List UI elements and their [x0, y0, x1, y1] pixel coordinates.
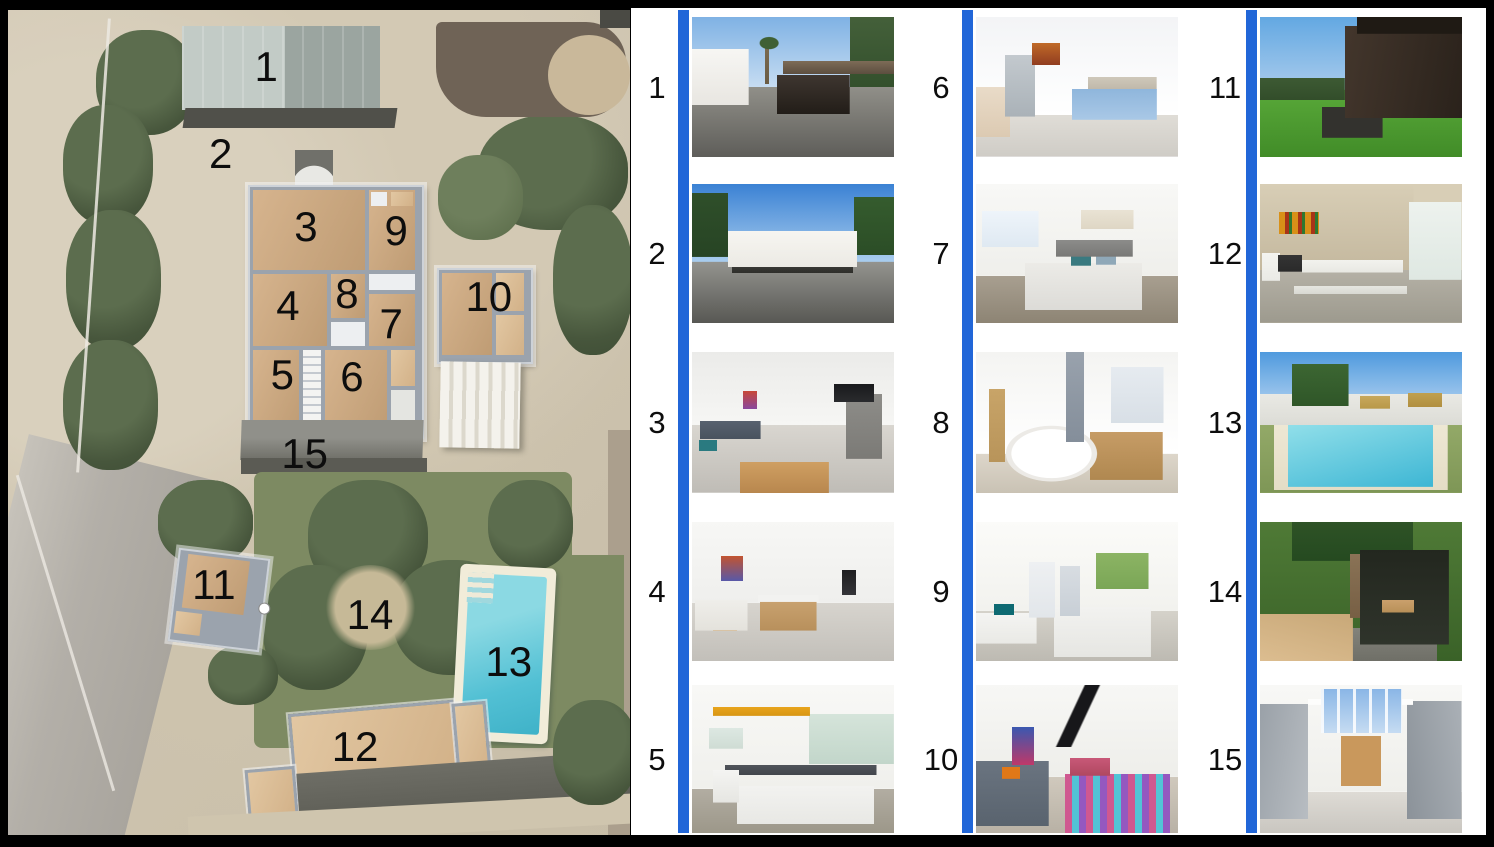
gallery-row: 3: [634, 352, 896, 493]
photo-number-8: 8: [918, 352, 964, 493]
photo-8: [976, 352, 1178, 493]
tree-canopy: [438, 155, 523, 240]
photo-2: [692, 184, 894, 323]
photo-9: [976, 522, 1178, 661]
gallery-column-3: 1112131415: [1202, 8, 1464, 835]
gallery-row: 11: [1202, 17, 1464, 157]
plan-label-1: 1: [254, 46, 277, 88]
photo-number-14: 14: [1202, 522, 1248, 661]
garden-shrub: [488, 480, 573, 570]
pool-steps: [467, 572, 495, 603]
photo-1: [692, 17, 894, 157]
photo-number-10: 10: [918, 685, 964, 833]
tree-canopy: [553, 205, 630, 355]
photo-5: [692, 685, 894, 833]
plan-label-12: 12: [332, 727, 379, 769]
warehouse-roof-area-1: [182, 26, 380, 110]
gallery-row: 12: [1202, 184, 1464, 323]
gallery-column-2: 678910: [918, 8, 1180, 835]
plan-closet: [371, 192, 387, 206]
photo-6: [976, 17, 1178, 157]
photo-number-4: 4: [634, 522, 680, 661]
gallery-row: 15: [1202, 685, 1464, 833]
roof-shadow: [183, 108, 398, 128]
photo-number-7: 7: [918, 184, 964, 323]
photo-gallery: 123456789101112131415: [631, 8, 1486, 835]
photo-11: [1260, 17, 1462, 157]
photo-number-11: 11: [1202, 17, 1248, 157]
plan-label-7: 7: [379, 303, 402, 345]
gallery-row: 13: [1202, 352, 1464, 493]
photo-number-5: 5: [634, 685, 680, 833]
gallery-row: 9: [918, 522, 1180, 661]
plan-label-11: 11: [192, 564, 236, 606]
plan-label-14: 14: [347, 595, 394, 637]
gallery-row: 8: [918, 352, 1180, 493]
porch-arch: [295, 150, 333, 188]
plan-label-9: 9: [384, 210, 407, 252]
plan-label-4: 4: [276, 285, 299, 327]
photo-14: [1260, 522, 1462, 661]
gallery-row: 14: [1202, 522, 1464, 661]
plan-label-6: 6: [340, 356, 363, 398]
plan-label-2: 2: [209, 133, 232, 175]
tree-canopy: [553, 700, 630, 805]
gallery-row: 4: [634, 522, 896, 661]
plan-hall: [331, 322, 365, 346]
photo-3: [692, 352, 894, 493]
tree-canopy: [63, 105, 153, 225]
photo-number-12: 12: [1202, 184, 1248, 323]
gallery-row: 2: [634, 184, 896, 323]
gallery-row: 5: [634, 685, 896, 833]
awning: [439, 361, 520, 448]
photo-number-6: 6: [918, 17, 964, 157]
house-roof-15: [240, 420, 423, 460]
photo-13: [1260, 352, 1462, 493]
photo-7: [976, 184, 1178, 323]
photo-4: [692, 522, 894, 661]
gallery-row: 7: [918, 184, 1180, 323]
photo-number-15: 15: [1202, 685, 1248, 833]
plan-label-8: 8: [335, 273, 358, 315]
garden-shrub: [208, 645, 278, 705]
tree-canopy: [66, 210, 161, 350]
plan-corridor: [369, 274, 415, 290]
plan-label-15: 15: [281, 433, 328, 475]
plan-label-13: 13: [485, 642, 532, 684]
plan-label-3: 3: [294, 206, 317, 248]
photo-number-3: 3: [634, 352, 680, 493]
gallery-row: 1: [634, 17, 896, 157]
plan-room-11b: [174, 611, 202, 636]
gallery-row: 6: [918, 17, 1180, 157]
plan-closet: [391, 192, 413, 206]
neighbour-roof: [600, 10, 630, 28]
photo-10: [976, 685, 1178, 833]
photo-12: [1260, 184, 1462, 323]
page-frame: 123456789101112131415 123456789101112131…: [0, 0, 1494, 847]
courtyard: [548, 35, 630, 115]
photo-number-1: 1: [634, 17, 680, 157]
photo-number-9: 9: [918, 522, 964, 661]
plan-label-5: 5: [271, 354, 294, 396]
photo-15: [1260, 685, 1462, 833]
photo-number-13: 13: [1202, 352, 1248, 493]
photo-number-2: 2: [634, 184, 680, 323]
gallery-column-1: 12345: [634, 8, 896, 835]
plan-closet: [391, 350, 415, 386]
gallery-row: 10: [918, 685, 1180, 833]
plan-label-10: 10: [465, 276, 512, 318]
site-plan-aerial: 123456789101112131415: [8, 10, 630, 835]
plan-room-10c: [496, 315, 524, 355]
